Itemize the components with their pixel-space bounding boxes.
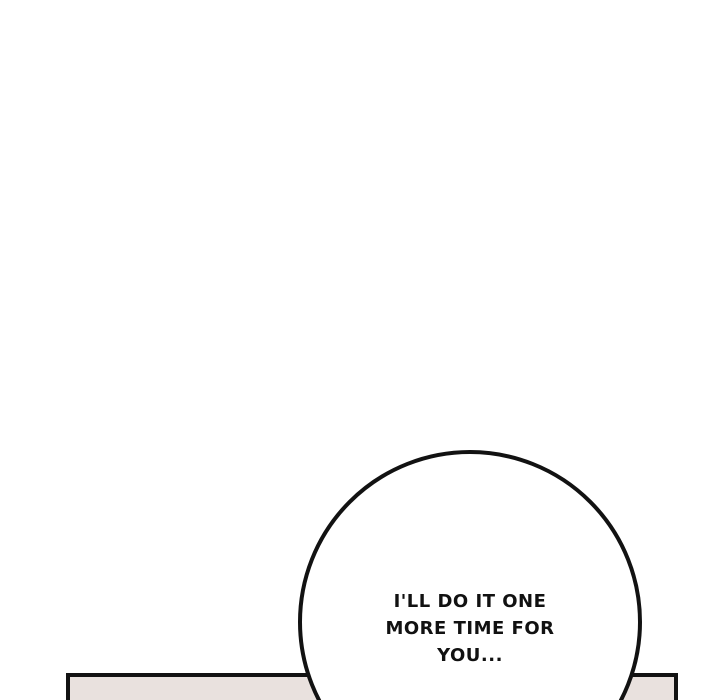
speech-line: MORE TIME FOR <box>385 615 554 642</box>
comic-page: I'LL DO IT ONE MORE TIME FOR YOU... <box>0 0 720 700</box>
speech-line: YOU... <box>385 642 554 669</box>
speech-line: I'LL DO IT ONE <box>385 588 554 615</box>
speech-bubble: I'LL DO IT ONE MORE TIME FOR YOU... <box>298 450 642 700</box>
speech-bubble-text: I'LL DO IT ONE MORE TIME FOR YOU... <box>385 588 554 669</box>
